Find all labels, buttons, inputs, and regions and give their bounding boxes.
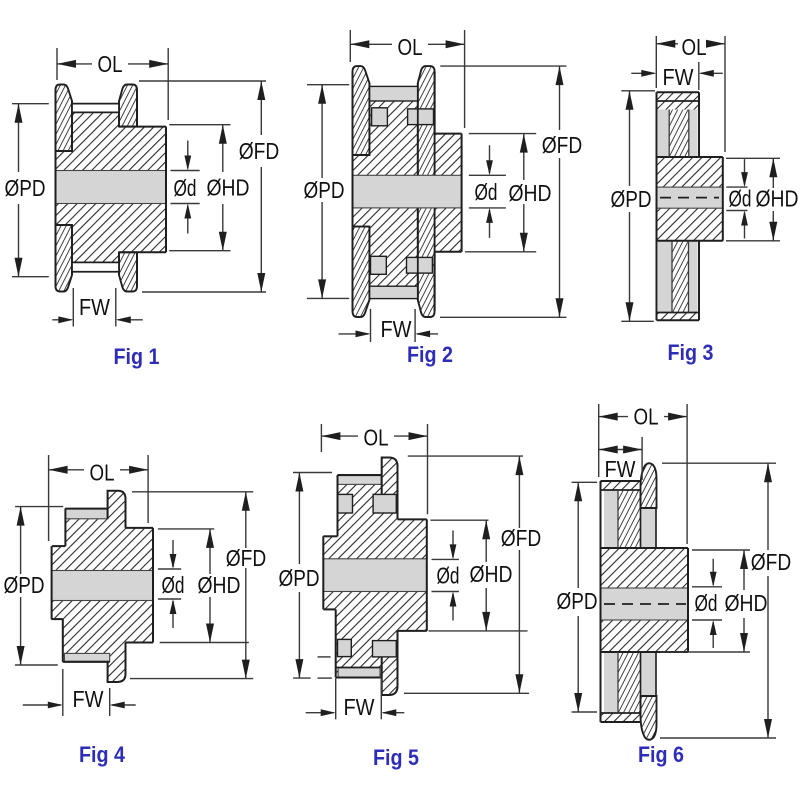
svg-text:Ød: Ød [162,572,185,598]
svg-text:OL: OL [364,425,389,451]
svg-text:Ød: Ød [437,563,460,589]
svg-text:FW: FW [663,64,694,90]
svg-text:ØHD: ØHD [756,186,799,212]
svg-text:FW: FW [381,316,412,342]
svg-text:ØFD: ØFD [751,549,792,575]
svg-text:Fig 5: Fig 5 [373,745,419,770]
svg-text:ØPD: ØPD [557,588,598,614]
svg-text:Ød: Ød [475,179,498,205]
svg-text:FW: FW [79,294,110,320]
svg-text:FW: FW [344,694,375,720]
svg-text:ØPD: ØPD [611,186,652,212]
svg-text:Ød: Ød [174,175,197,201]
svg-text:ØHD: ØHD [509,180,552,206]
svg-text:ØPD: ØPD [5,175,46,201]
svg-text:Fig 2: Fig 2 [407,342,453,367]
svg-text:ØFD: ØFD [239,138,280,164]
svg-text:ØHD: ØHD [725,590,768,616]
svg-text:Ød: Ød [729,186,752,212]
svg-text:OL: OL [634,404,659,430]
svg-text:Fig 1: Fig 1 [114,344,160,369]
svg-text:Fig 6: Fig 6 [638,742,684,767]
svg-text:FW: FW [605,456,636,482]
svg-text:Fig 3: Fig 3 [668,340,714,365]
svg-text:ØHD: ØHD [207,175,250,201]
svg-text:OL: OL [90,460,115,486]
svg-text:Fig 4: Fig 4 [79,742,126,767]
svg-text:ØFD: ØFD [501,525,542,551]
svg-text:OL: OL [98,51,123,77]
svg-text:ØPD: ØPD [4,572,45,598]
svg-text:OL: OL [682,34,707,60]
svg-text:Ød: Ød [695,590,718,616]
svg-text:ØHD: ØHD [470,561,513,587]
svg-text:ØHD: ØHD [198,572,241,598]
svg-text:ØPD: ØPD [304,177,345,203]
svg-text:FW: FW [73,686,104,712]
svg-text:ØPD: ØPD [279,565,320,591]
svg-text:ØFD: ØFD [226,545,267,571]
svg-text:OL: OL [398,34,423,60]
svg-text:ØFD: ØFD [542,132,583,158]
